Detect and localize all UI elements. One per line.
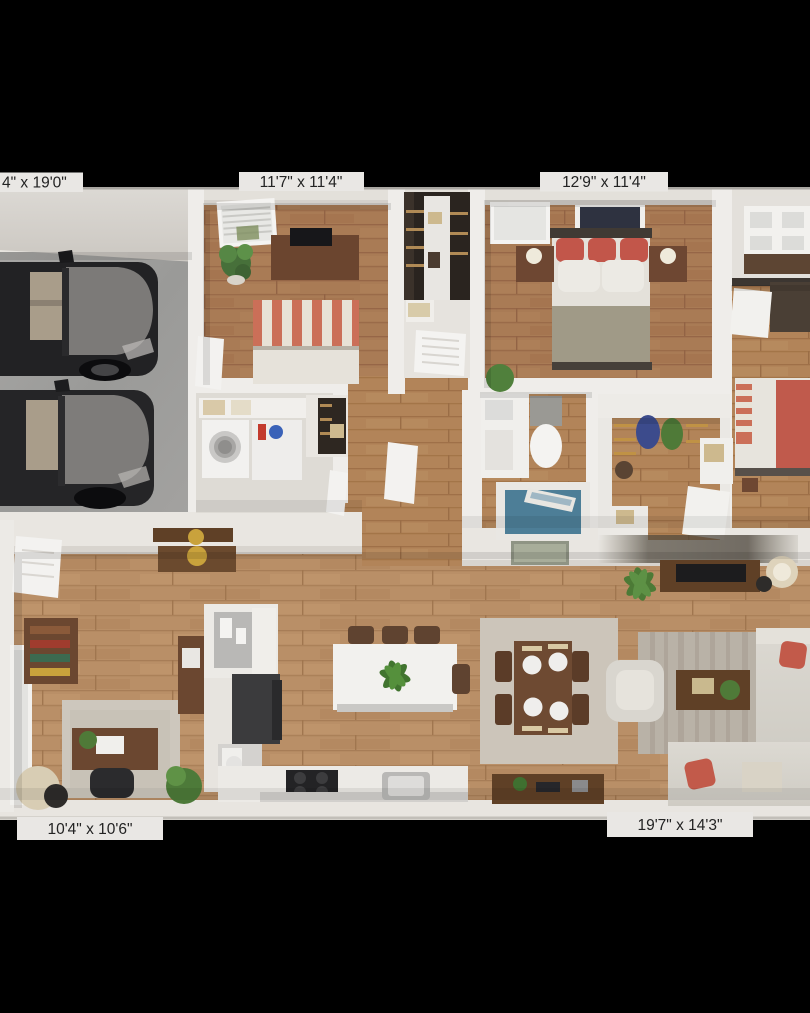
svg-text:10'4" x 10'6": 10'4" x 10'6" [47, 821, 132, 838]
svg-text:19'7" x 14'3": 19'7" x 14'3" [637, 817, 722, 834]
svg-text:11'7" x 11'4": 11'7" x 11'4" [260, 174, 343, 191]
svg-text:4" x 19'0": 4" x 19'0" [2, 175, 67, 192]
svg-text:12'9" x 11'4": 12'9" x 11'4" [562, 174, 646, 191]
